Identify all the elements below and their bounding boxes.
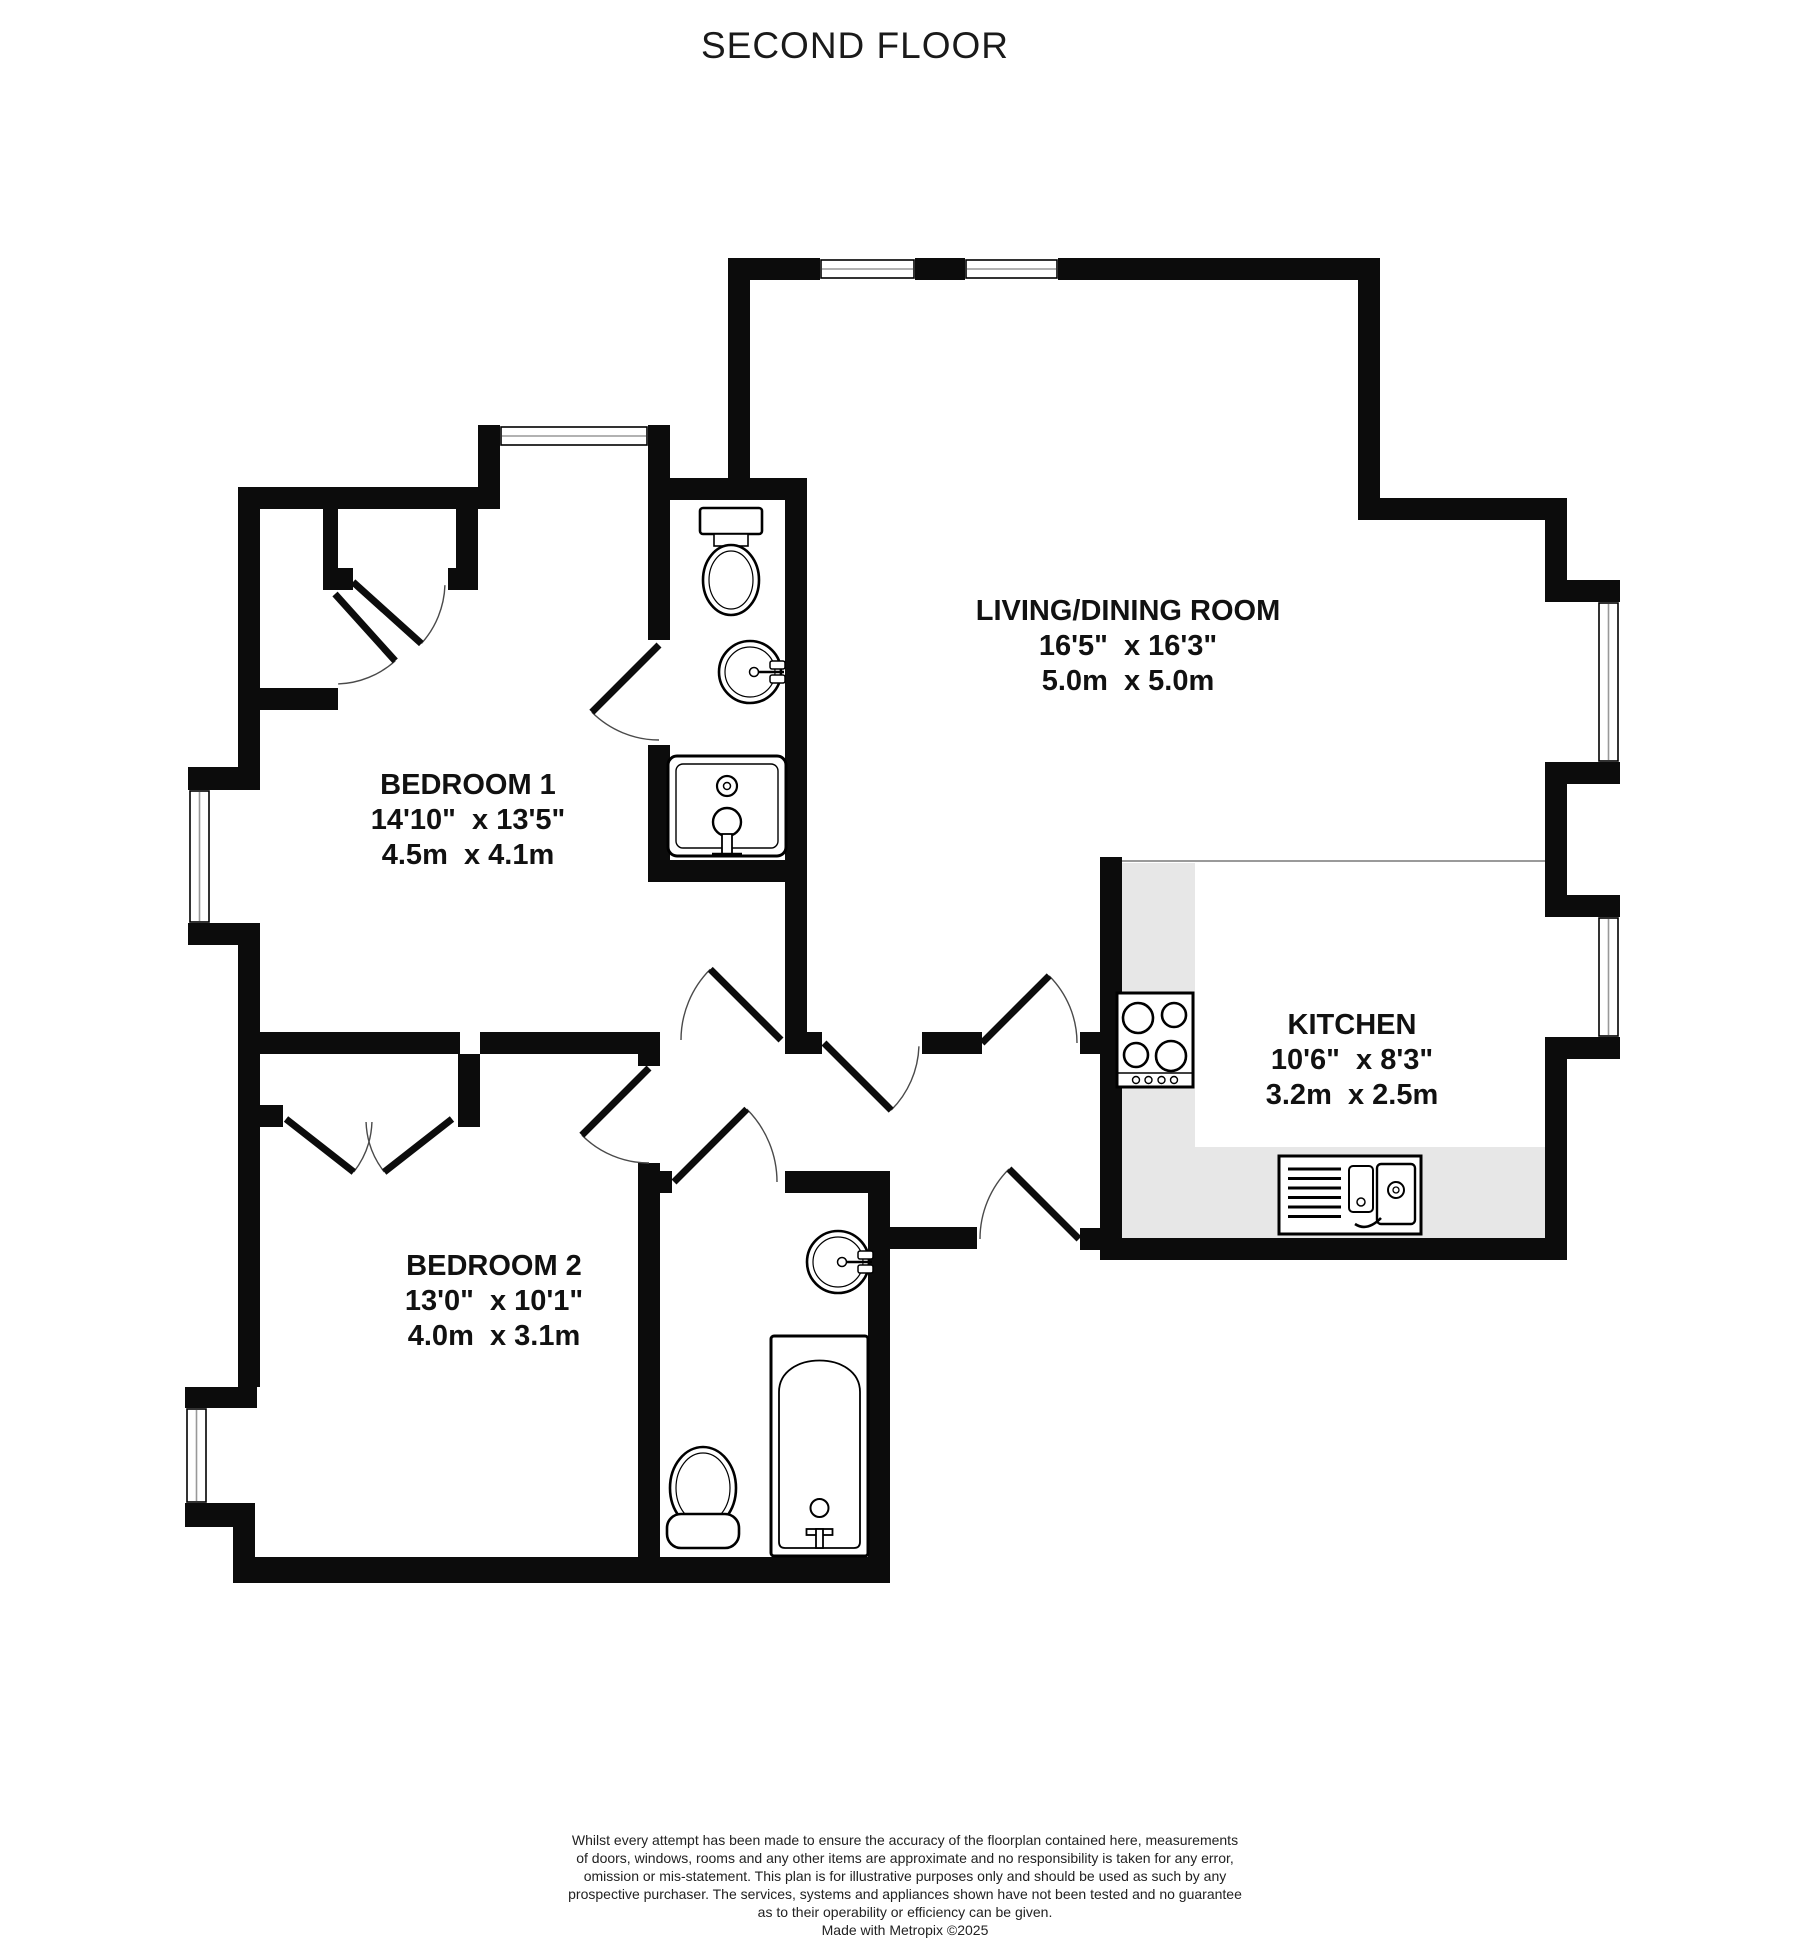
wall-segment [638,1054,660,1066]
disclaimer-line: prospective purchaser. The services, sys… [568,1885,1242,1903]
window-icon [190,791,209,922]
wall-segment [648,500,670,640]
wall-segment [1545,1059,1567,1260]
door-swing-arc [592,712,659,740]
page-title: SECOND FLOOR [701,24,1009,68]
bedroom2-door [582,1068,649,1163]
wall-segment [1545,1037,1620,1059]
wall-segment [260,688,338,710]
room-size-metric: 4.0m x 3.1m [405,1319,583,1354]
door-leaf [674,1109,747,1182]
wall-segment [638,1163,660,1583]
kitchen-sink-icon [1279,1156,1421,1234]
wall-segment [323,568,353,590]
window-icon [187,1409,206,1502]
wall-segment [238,1050,260,1387]
door-leaf [286,1119,354,1172]
wall-segment [638,1171,672,1193]
wall-segment [740,258,820,280]
window-icon [1599,918,1618,1036]
wall-segment [238,1032,460,1054]
wall-segment [238,945,260,1032]
wall-segment [188,767,260,790]
wall-segment [238,487,500,509]
disclaimer: Whilst every attempt has been made to en… [568,1831,1242,1939]
bathtub-icon [771,1336,868,1556]
bedroom1-door [681,969,781,1040]
wall-segment [185,1387,257,1408]
hob-icon [1117,993,1193,1087]
door-swing-arc [421,585,445,643]
wall-segment [458,1054,480,1127]
room-label-bedroom-1: BEDROOM 1 14'10" x 13'5" 4.5m x 4.1m [371,768,566,873]
basin-icon [719,641,785,703]
kitchen-door [982,976,1077,1043]
disclaimer-line: of doors, windows, rooms and any other i… [568,1849,1242,1867]
wall-segment [868,1171,890,1583]
door-swing-arc [891,1046,919,1110]
living-room-door [824,1043,919,1110]
room-size-imperial: 13'0" x 10'1" [405,1284,583,1319]
wall-segment [1545,580,1620,602]
wall-segment [915,258,965,280]
wall-segment [922,1032,982,1054]
window-icon [1599,603,1618,761]
wall-segment [1545,895,1620,917]
window-icon [966,260,1057,278]
disclaimer-line: Whilst every attempt has been made to en… [568,1831,1242,1849]
room-size-imperial: 10'6" x 8'3" [1266,1043,1439,1078]
wall-segment [785,1032,822,1054]
door-swing-arc [747,1109,777,1182]
toilet-top-icon [700,508,762,615]
wall-segment [1358,258,1380,520]
shower-sink-icon [668,756,786,856]
door-swing-arc [1049,976,1077,1043]
room-name: KITCHEN [1266,1008,1439,1043]
disclaimer-credit: Made with Metropix ©2025 [568,1921,1242,1939]
disclaimer-line: omission or mis-statement. This plan is … [568,1867,1242,1885]
room-label-kitchen: KITCHEN 10'6" x 8'3" 3.2m x 2.5m [1266,1008,1439,1113]
door-swing-arc [582,1135,649,1163]
door-leaf [335,594,395,661]
wall-segment [785,500,807,1032]
room-name: BEDROOM 2 [405,1249,583,1284]
door-leaf [982,976,1049,1043]
bathroom-door [674,1109,777,1182]
room-label-bedroom-2: BEDROOM 2 13'0" x 10'1" 4.0m x 3.1m [405,1249,583,1354]
window-icon [501,427,647,445]
door-leaf [710,969,781,1040]
room-name: LIVING/DINING ROOM [976,594,1281,629]
wall-segment [238,487,260,767]
room-size-metric: 4.5m x 4.1m [371,838,566,873]
wall-segment [233,1503,255,1583]
wall-segment [1358,498,1567,520]
door-swing-arc [354,1122,372,1172]
ensuite-door [592,645,659,740]
door-leaf [353,582,421,644]
room-size-imperial: 16'5" x 16'3" [976,629,1281,664]
wall-segment [188,923,260,945]
room-label-living-dining: LIVING/DINING ROOM 16'5" x 16'3" 5.0m x … [976,594,1281,699]
wall-segment [260,1105,283,1127]
room-size-metric: 5.0m x 5.0m [976,664,1281,699]
door-leaf [582,1068,649,1135]
wall-segment [1100,1238,1567,1260]
basin-icon [807,1231,873,1293]
wardrobe-door-left [286,1119,372,1172]
wall-segment [233,1557,890,1583]
entrance-door [980,1169,1079,1239]
door-leaf [384,1119,452,1172]
door-leaf [1009,1169,1079,1239]
wall-segment [648,478,807,500]
wall-segment [1080,1228,1122,1250]
wall-segment [1545,762,1620,784]
wall-segment [648,425,670,478]
door-leaf [824,1043,891,1110]
door-swing-arc [980,1169,1009,1239]
room-size-metric: 3.2m x 2.5m [1266,1078,1439,1113]
window-icon [821,260,914,278]
room-size-imperial: 14'10" x 13'5" [371,803,566,838]
wall-segment [448,568,478,590]
wall-segment [648,860,807,882]
wall-segment [1080,1032,1100,1054]
disclaimer-line: as to their operability or efficiency ca… [568,1903,1242,1921]
door-swing-arc [366,1122,384,1172]
door-swing-arc [681,969,710,1040]
floorplan-canvas [0,0,1808,1920]
door-leaf [592,645,659,712]
wall-segment [890,1227,977,1249]
door-swing-arc [338,661,395,684]
wardrobe-door-right [366,1119,452,1172]
wall-segment [480,1032,660,1054]
room-name: BEDROOM 1 [371,768,566,803]
wall-segment [1058,258,1380,280]
toilet-front-icon [667,1447,739,1548]
wall-segment [728,258,750,500]
